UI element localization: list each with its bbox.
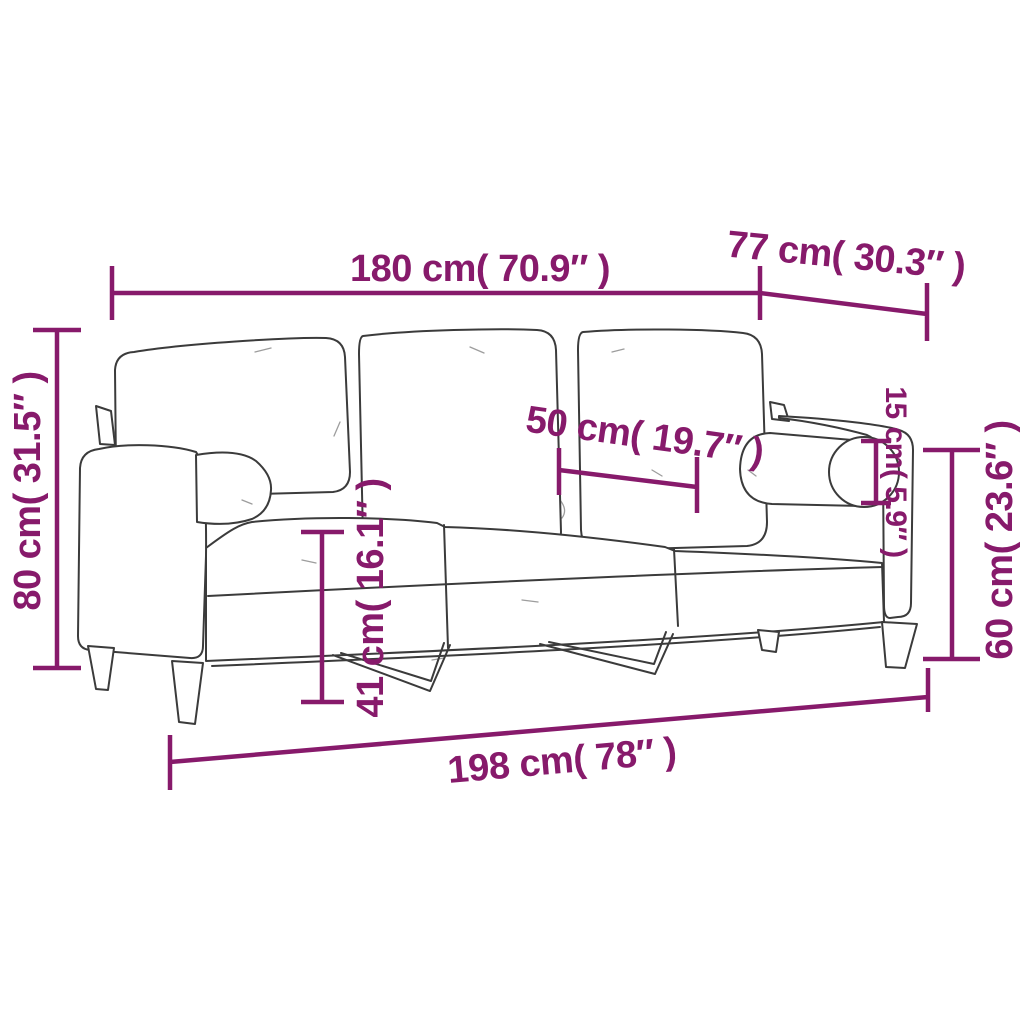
dim-line-arm-height-60 bbox=[923, 450, 980, 659]
sofa-leg-back-left bbox=[88, 646, 114, 690]
sofa-armrest-left bbox=[78, 445, 206, 658]
sofa-seat-base bbox=[206, 518, 884, 661]
sofa-bolster-left bbox=[196, 453, 271, 524]
dim-label-overall-width: 180 cm( 70.9″ ) bbox=[350, 248, 610, 290]
dim-label-overall-height: 80 cm( 31.5″ ) bbox=[7, 371, 49, 610]
dim-label-arm-height: 60 cm( 23.6″ ) bbox=[979, 420, 1021, 659]
dim-label-overall-length: 198 cm( 78″ ) bbox=[446, 730, 678, 792]
sofa-dimension-diagram: 180 cm( 70.9″ ) 77 cm( 30.3″ ) 50 cm( 19… bbox=[0, 0, 1024, 1024]
diagram-canvas: 180 cm( 70.9″ ) 77 cm( 30.3″ ) 50 cm( 19… bbox=[0, 0, 1024, 1024]
sofa-drawing bbox=[78, 329, 917, 724]
sofa-back-frame-left bbox=[96, 406, 115, 445]
dim-label-pillow-diameter: 15 cm( 5.9″ ) bbox=[879, 386, 912, 557]
dim-label-seat-height: 41 cm( 16.1″ ) bbox=[350, 478, 392, 717]
dim-line-overall-depth-77 bbox=[760, 283, 927, 341]
sofa-leg-right bbox=[882, 622, 917, 668]
sofa-leg-front-left bbox=[172, 661, 203, 724]
sofa-leg-front-right-small bbox=[758, 630, 779, 652]
